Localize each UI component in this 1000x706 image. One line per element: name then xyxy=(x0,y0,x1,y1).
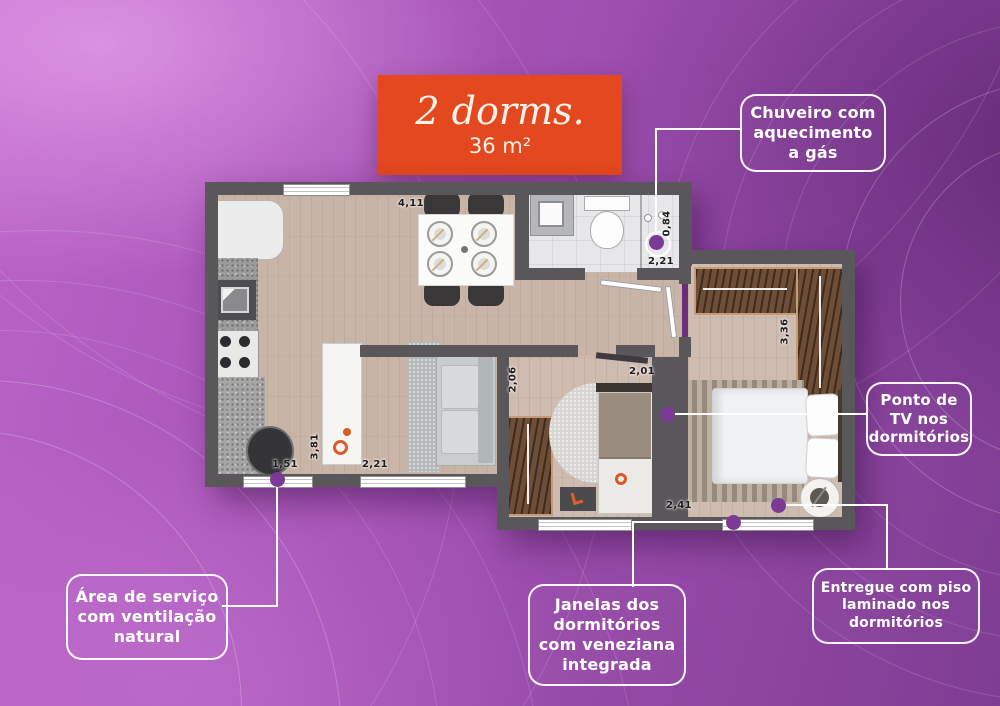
callout-servico: Área de serviço com ventilação natural xyxy=(66,574,228,660)
measurement-label: 2,01 xyxy=(629,366,655,377)
bathroom-sink xyxy=(538,201,564,227)
connector-janelas xyxy=(632,521,634,587)
measurement-label: 2,21 xyxy=(648,256,674,267)
wall xyxy=(205,182,692,195)
bedroom2-window xyxy=(538,519,632,531)
sofa-backrest xyxy=(478,353,493,463)
sofa-cushion xyxy=(441,365,479,409)
centerpiece-icon xyxy=(461,246,468,253)
poster-background: 2 dorms. 36 m² xyxy=(0,0,1000,706)
double-bed xyxy=(712,388,808,484)
bathroom-vanity xyxy=(530,194,574,236)
measurement-label: 2,21 xyxy=(362,459,388,470)
wardrobe-rail xyxy=(819,276,821,388)
connector-servico xyxy=(276,482,278,606)
wall xyxy=(205,182,218,487)
sofa-cushion xyxy=(441,410,479,454)
connector-tv xyxy=(670,413,868,415)
living-top-window xyxy=(283,184,350,196)
marker-dot-piso xyxy=(771,498,786,513)
pillow xyxy=(805,437,841,479)
single-bed-headboard xyxy=(596,383,654,392)
measurement-label: 2,06 xyxy=(507,367,518,393)
living-window xyxy=(360,476,466,488)
wall xyxy=(842,250,855,530)
single-bed xyxy=(598,392,654,514)
wall xyxy=(515,182,529,280)
toilet-bowl xyxy=(590,211,624,249)
measurement-label: 3,36 xyxy=(779,319,790,345)
wall xyxy=(679,264,691,284)
burner-icon xyxy=(220,357,231,368)
bedroom-main-wardrobe-top xyxy=(694,267,800,315)
shower-valve-icon xyxy=(644,214,652,222)
wall xyxy=(679,250,855,264)
pillow xyxy=(805,393,841,437)
marker-dot-servico xyxy=(270,472,285,487)
wall xyxy=(360,345,578,357)
decor-bowl-icon xyxy=(333,440,348,455)
connector-chuveiro xyxy=(655,128,657,240)
toy-icon xyxy=(571,491,584,505)
callout-piso: Entregue com piso laminado nos dormitóri… xyxy=(812,568,980,644)
callout-chuveiro: Chuveiro com aquecimento a gás xyxy=(740,94,886,172)
sink-basin xyxy=(221,287,249,313)
measurement-label: 2,41 xyxy=(666,500,692,511)
blanket xyxy=(599,393,651,459)
toilet xyxy=(584,196,630,211)
toy-icon xyxy=(615,473,627,485)
measurement-label: 1,51 xyxy=(272,459,298,470)
sofa xyxy=(436,352,496,466)
wall xyxy=(652,357,688,517)
callout-tv: Ponto de TV nos dormitórios xyxy=(866,382,972,456)
callout-tv-text: Ponto de TV nos dormitórios xyxy=(869,391,970,447)
wall xyxy=(679,337,691,357)
measurement-label: 0,84 xyxy=(661,211,672,237)
sideboard xyxy=(322,343,362,465)
marker-dot-tv xyxy=(660,407,675,422)
connector-chuveiro xyxy=(656,128,742,130)
wall xyxy=(637,268,680,280)
callout-servico-text: Área de serviço com ventilação natural xyxy=(75,587,218,647)
kitchen-sink xyxy=(214,280,256,320)
measurement-label: 3,81 xyxy=(309,434,320,460)
connector-piso xyxy=(782,504,888,506)
dining-table xyxy=(418,214,514,286)
wardrobe-rail xyxy=(703,288,787,290)
decor-bowl-icon xyxy=(343,428,351,436)
callout-piso-text: Entregue com piso laminado nos dormitóri… xyxy=(821,580,972,633)
burner-icon xyxy=(220,336,231,347)
connector-servico xyxy=(222,605,278,607)
bedroom2-wardrobe xyxy=(507,416,553,516)
measurement-label: 4,11 xyxy=(398,198,424,209)
wardrobe-rail xyxy=(527,424,529,504)
marker-dot-janelas xyxy=(726,515,741,530)
marker-dot-chuveiro xyxy=(649,235,664,250)
wall xyxy=(529,268,585,280)
callout-chuveiro-text: Chuveiro com aquecimento a gás xyxy=(750,103,875,163)
fridge xyxy=(216,200,284,260)
callout-janelas: Janelas dos dormitórios com veneziana in… xyxy=(528,584,686,686)
stove xyxy=(213,330,259,378)
shower-glass xyxy=(640,194,642,270)
bedside-table xyxy=(800,478,840,518)
callout-janelas-text: Janelas dos dormitórios com veneziana in… xyxy=(539,595,676,675)
connector-janelas xyxy=(633,521,733,523)
burner-icon xyxy=(239,357,250,368)
connector-piso xyxy=(886,504,888,570)
play-mat xyxy=(560,487,596,511)
burner-icon xyxy=(239,336,250,347)
